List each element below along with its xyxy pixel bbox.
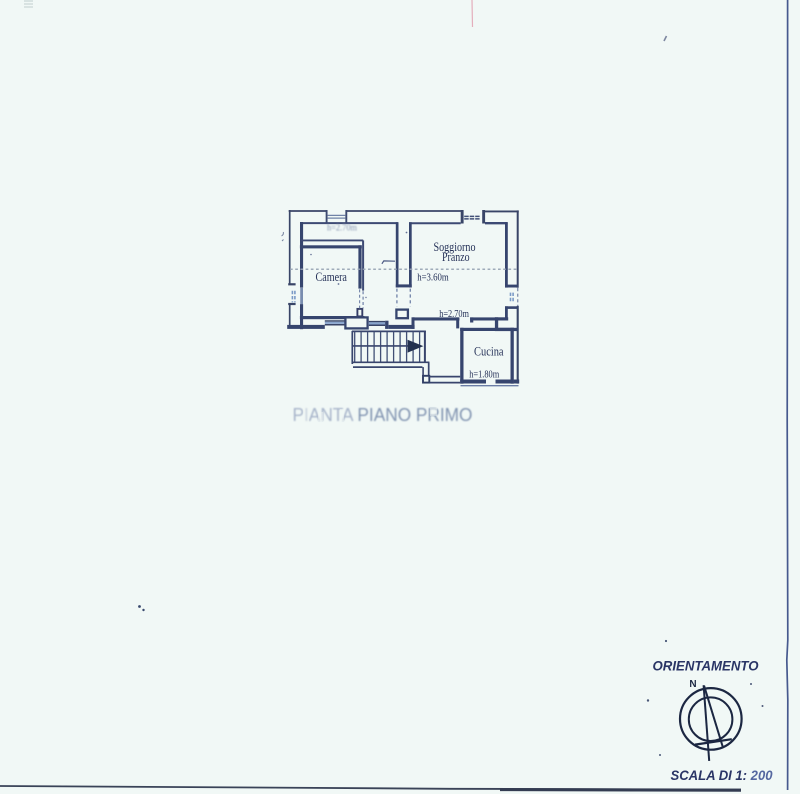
svg-text:h=3.60m: h=3.60m: [417, 272, 449, 283]
svg-text:Pranzo: Pranzo: [442, 250, 470, 264]
svg-text:ORIENTAMENTO: ORIENTAMENTO: [653, 658, 759, 674]
svg-text:h=1.80m: h=1.80m: [469, 370, 499, 381]
svg-text:Camera: Camera: [315, 270, 347, 284]
svg-text:h=2.70m: h=2.70m: [439, 309, 469, 320]
svg-text:h=2.70m: h=2.70m: [327, 224, 358, 234]
svg-text:N: N: [689, 679, 696, 690]
svg-text:Cucina: Cucina: [474, 345, 504, 359]
svg-text:SCALA DI 1: 200: SCALA DI 1: 200: [671, 767, 773, 783]
